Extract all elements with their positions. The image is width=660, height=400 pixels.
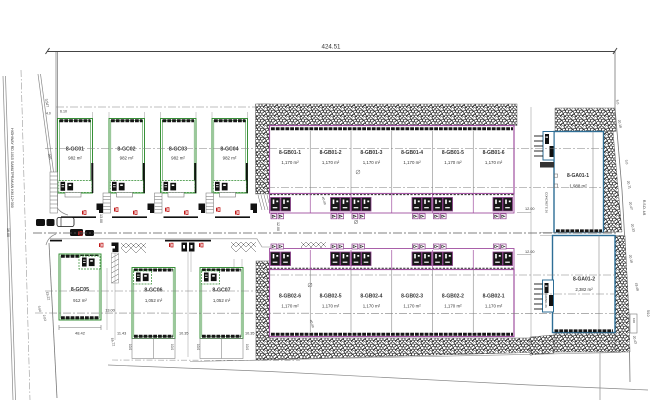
svg-text:1,170 m²: 1,170 m² — [281, 304, 299, 309]
svg-text:424.51: 424.51 — [322, 44, 341, 51]
svg-text:1,170 m²: 1,170 m² — [281, 160, 299, 165]
svg-text:8-GC02: 8-GC02 — [117, 147, 135, 153]
svg-text:10.0: 10.0 — [128, 344, 132, 350]
svg-text:10.0: 10.0 — [196, 344, 200, 350]
svg-text:48.42: 48.42 — [75, 331, 86, 336]
svg-text:12.00: 12.00 — [276, 222, 280, 231]
svg-text:1,170 m²: 1,170 m² — [363, 160, 381, 165]
svg-text:982 m²: 982 m² — [120, 156, 134, 161]
svg-text:13.00: 13.00 — [105, 309, 115, 313]
svg-text:8-GB02-3: 8-GB02-3 — [401, 294, 423, 300]
svg-text:8-GB01-1: 8-GB01-1 — [279, 150, 301, 156]
svg-text:982 m²: 982 m² — [223, 156, 237, 161]
svg-text:8-GC03: 8-GC03 — [169, 147, 187, 153]
svg-text:5/10: 5/10 — [646, 310, 650, 317]
svg-text:10.35: 10.35 — [179, 332, 189, 336]
svg-text:8-GB02-6: 8-GB02-6 — [279, 294, 301, 300]
svg-text:12.00: 12.00 — [525, 250, 535, 254]
svg-text:8-GC04: 8-GC04 — [220, 147, 238, 153]
svg-text:1,170 m²: 1,170 m² — [485, 304, 503, 309]
svg-text:8-GB01-4: 8-GB01-4 — [401, 150, 423, 156]
svg-text:8-GB01-5: 8-GB01-5 — [442, 150, 464, 156]
svg-text:912 m²: 912 m² — [73, 298, 87, 303]
svg-text:CONCRETE 26: CONCRETE 26 — [545, 192, 549, 213]
svg-text:10.0: 10.0 — [245, 344, 249, 350]
svg-text:4.0: 4.0 — [46, 112, 51, 116]
svg-text:1,170 m²: 1,170 m² — [444, 304, 462, 309]
svg-text:HIGHWAY RD.1015 SAMUTPRAKAN KM: HIGHWAY RD.1015 SAMUTPRAKAN KM.12+300 — [10, 128, 14, 208]
svg-text:1,170 m²: 1,170 m² — [485, 160, 503, 165]
svg-text:LOADING 26: LOADING 26 — [544, 290, 548, 308]
svg-text:1,052 m²: 1,052 m² — [213, 298, 231, 303]
svg-text:8-GB02-4: 8-GB02-4 — [360, 294, 382, 300]
svg-text:8-GA01-2: 8-GA01-2 — [573, 277, 595, 283]
svg-text:8-GC06: 8-GC06 — [144, 288, 162, 294]
svg-text:8-GB01-2: 8-GB01-2 — [320, 150, 342, 156]
svg-text:982 m²: 982 m² — [171, 156, 185, 161]
svg-text:1,170 m²: 1,170 m² — [403, 160, 421, 165]
svg-text:1,170 m²: 1,170 m² — [363, 304, 381, 309]
svg-text:8-GB02-5: 8-GB02-5 — [320, 294, 342, 300]
svg-text:8-GB01-6: 8-GB01-6 — [483, 150, 505, 156]
svg-text:10.35: 10.35 — [245, 332, 255, 336]
svg-text:1,170 m²: 1,170 m² — [444, 160, 462, 165]
svg-text:8-GB02-1: 8-GB02-1 — [483, 294, 505, 300]
svg-text:13.00: 13.00 — [99, 214, 103, 223]
svg-text:8-GB02-2: 8-GB02-2 — [442, 294, 464, 300]
svg-text:11.43: 11.43 — [117, 332, 126, 336]
svg-text:100: 100 — [632, 318, 636, 323]
svg-text:2,382 m²: 2,382 m² — [575, 287, 593, 292]
svg-text:1,170 m²: 1,170 m² — [403, 304, 421, 309]
svg-text:10.0: 10.0 — [170, 344, 174, 350]
svg-text:1,170 m²: 1,170 m² — [322, 160, 340, 165]
svg-text:982 m²: 982 m² — [68, 156, 82, 161]
svg-text:16.00: 16.00 — [6, 228, 10, 237]
svg-text:1,052 m²: 1,052 m² — [145, 298, 163, 303]
svg-text:1,170 m²: 1,170 m² — [322, 304, 340, 309]
svg-text:8-GB01-3: 8-GB01-3 — [360, 150, 382, 156]
svg-text:R.S.D. 4/8: R.S.D. 4/8 — [642, 200, 646, 215]
svg-text:8-GC05: 8-GC05 — [71, 287, 89, 293]
svg-text:6.10: 6.10 — [60, 110, 67, 114]
svg-text:12.00: 12.00 — [525, 207, 535, 211]
svg-text:8-GC07: 8-GC07 — [212, 288, 230, 294]
svg-text:8-GA01-1: 8-GA01-1 — [567, 173, 589, 179]
svg-text:8-GC01: 8-GC01 — [66, 147, 84, 153]
